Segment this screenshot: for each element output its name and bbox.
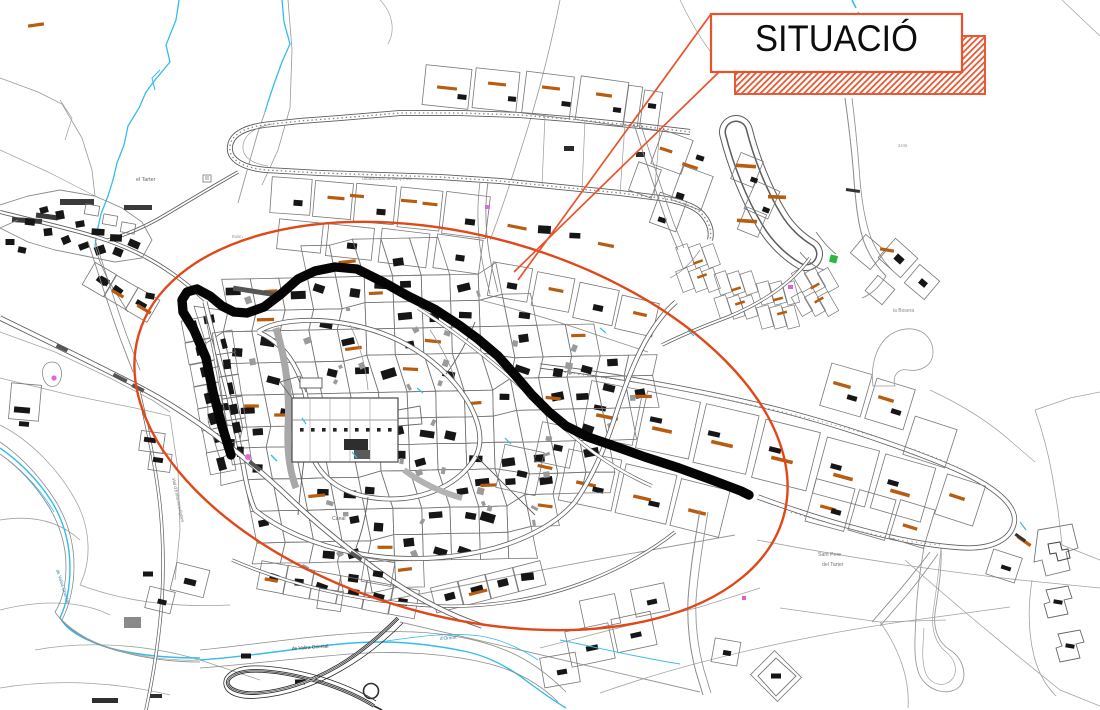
svg-text:del Tarter: del Tarter — [822, 562, 844, 568]
svg-text:la Bosera: la Bosera — [893, 308, 914, 314]
svg-text:d'Orient: d'Orient — [440, 635, 458, 642]
svg-text:el Tarter: el Tarter — [136, 177, 156, 183]
svg-text:Sant Pere: Sant Pere — [818, 552, 841, 558]
svg-text:Canal: Canal — [332, 516, 346, 522]
svg-text:SITUACIÓ: SITUACIÓ — [755, 18, 918, 59]
svg-text:Urbanització de Bany Pols: Urbanització de Bany Pols — [362, 176, 411, 181]
svg-text:Bulan: Bulan — [232, 234, 243, 239]
svg-text:3446: 3446 — [898, 143, 908, 148]
